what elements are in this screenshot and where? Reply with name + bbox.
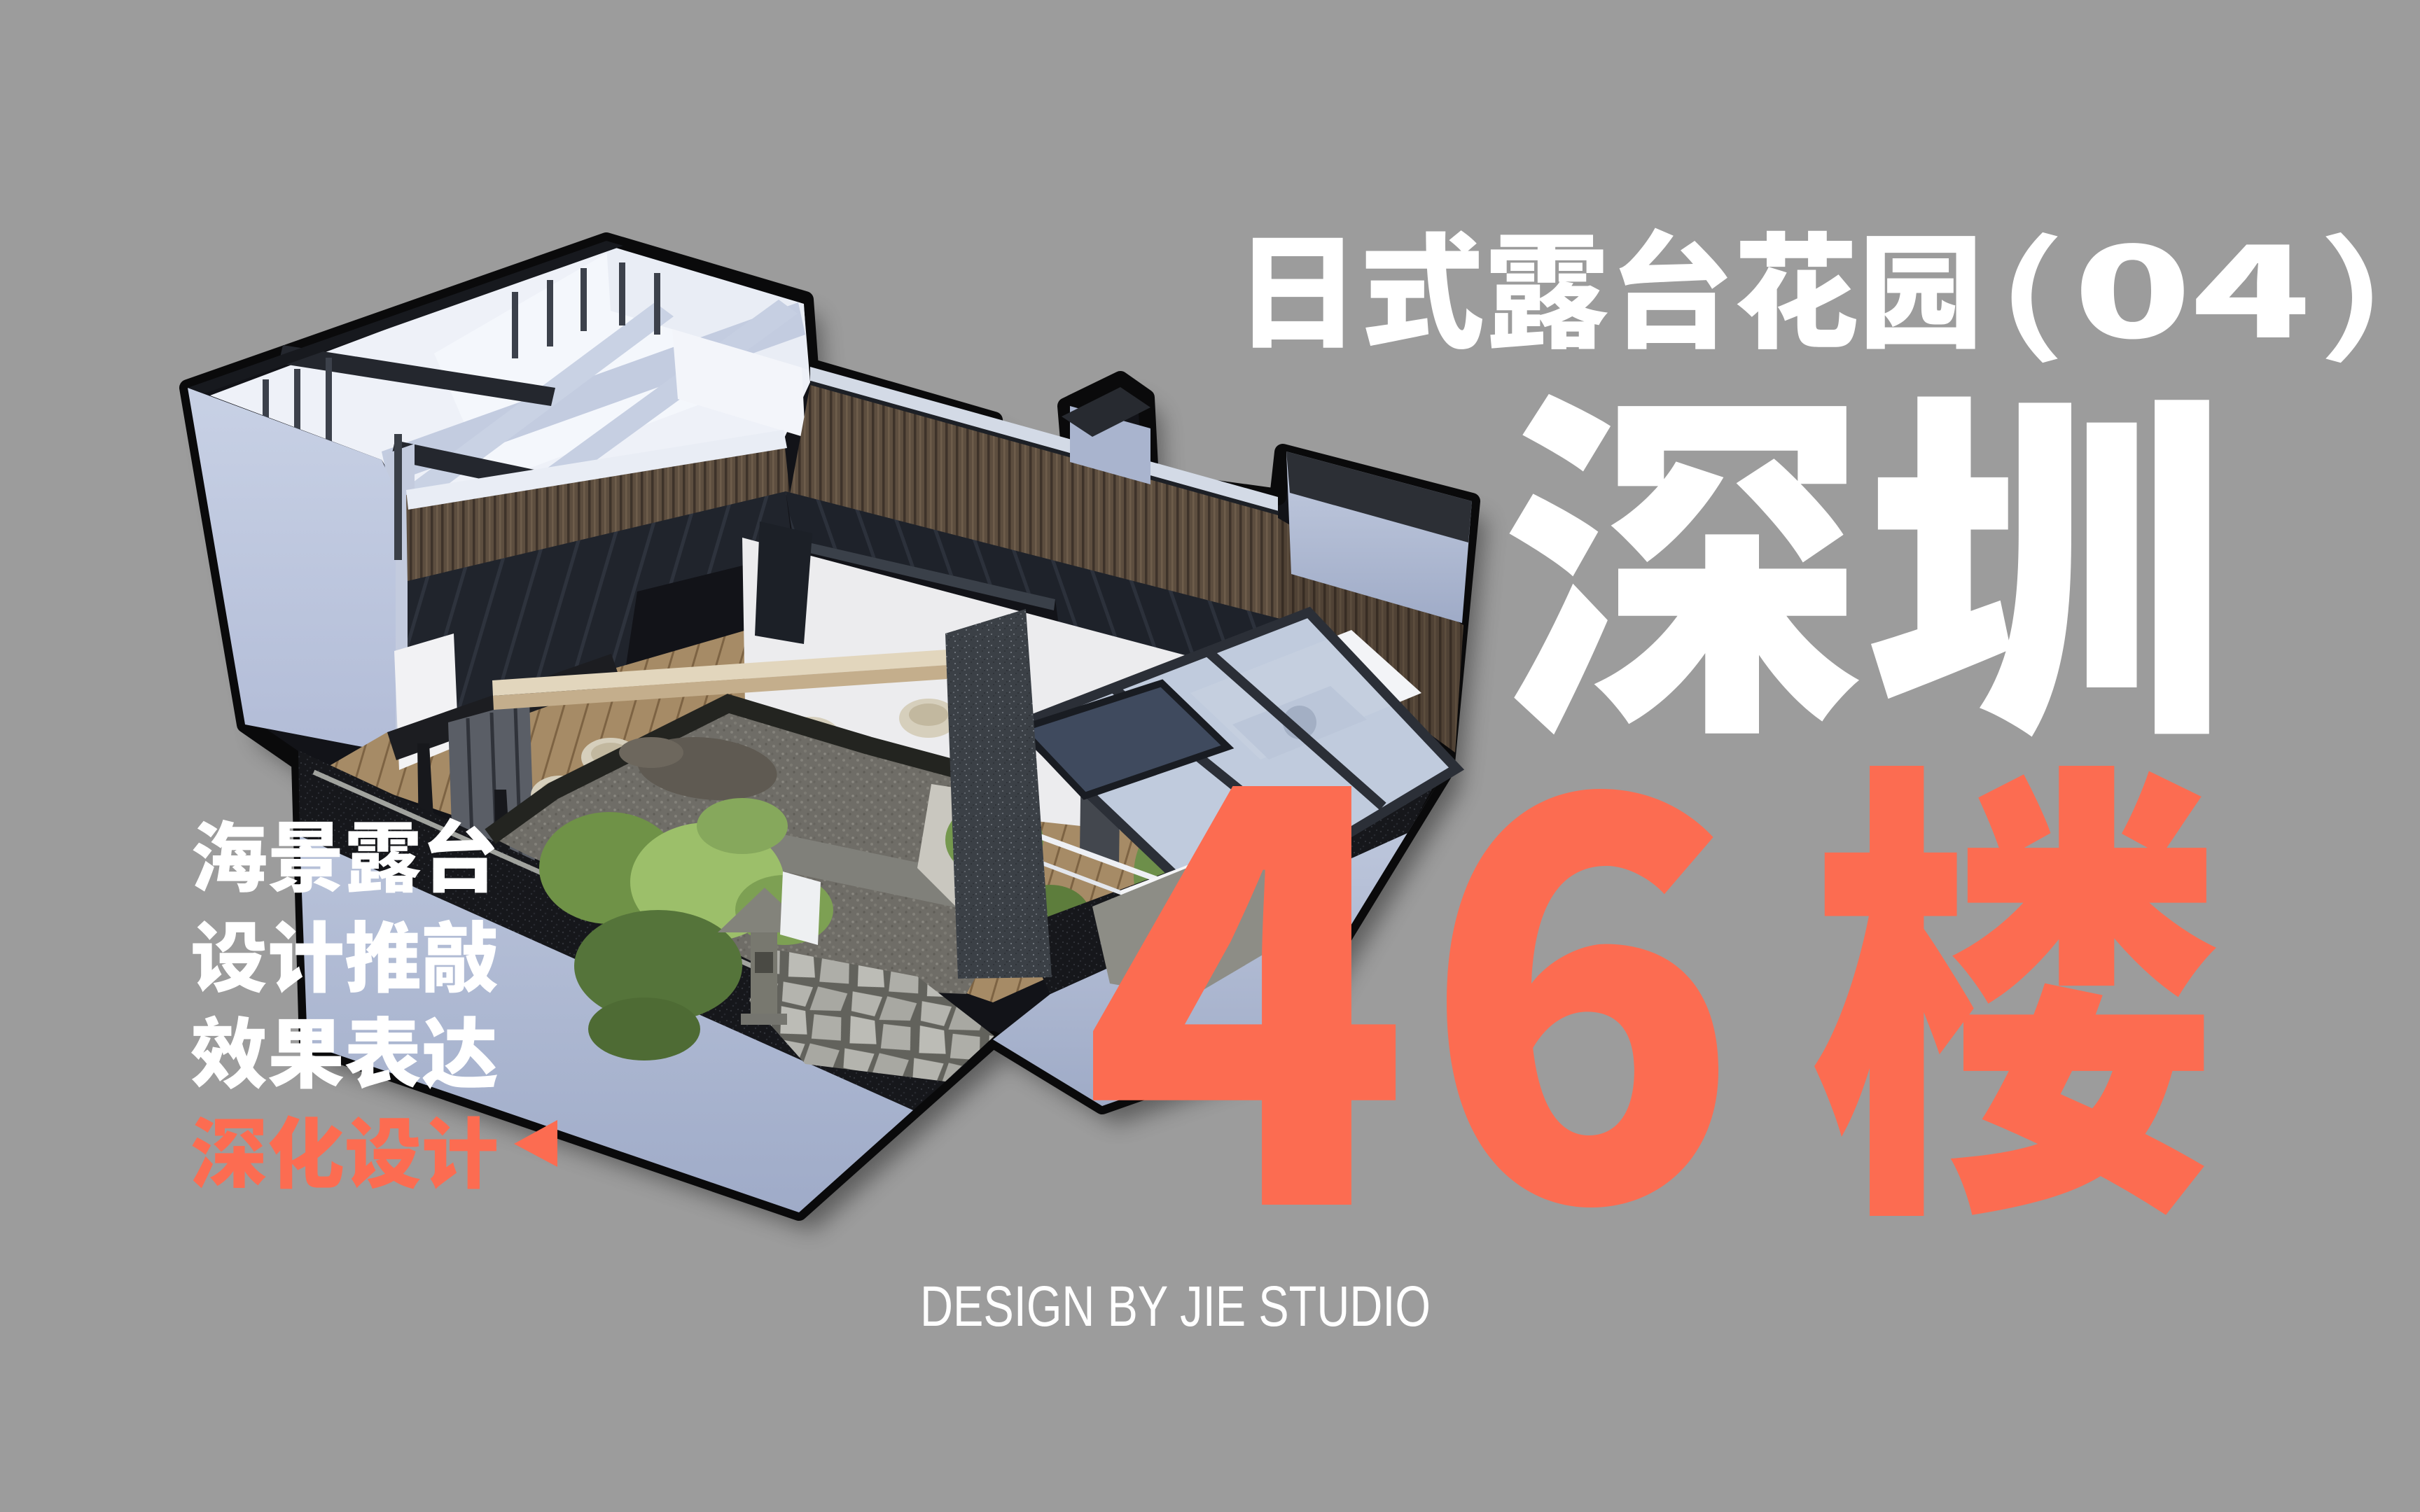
svg-text:DESIGN BY JIE STUDIO: DESIGN BY JIE STUDIO: [920, 1275, 1431, 1338]
